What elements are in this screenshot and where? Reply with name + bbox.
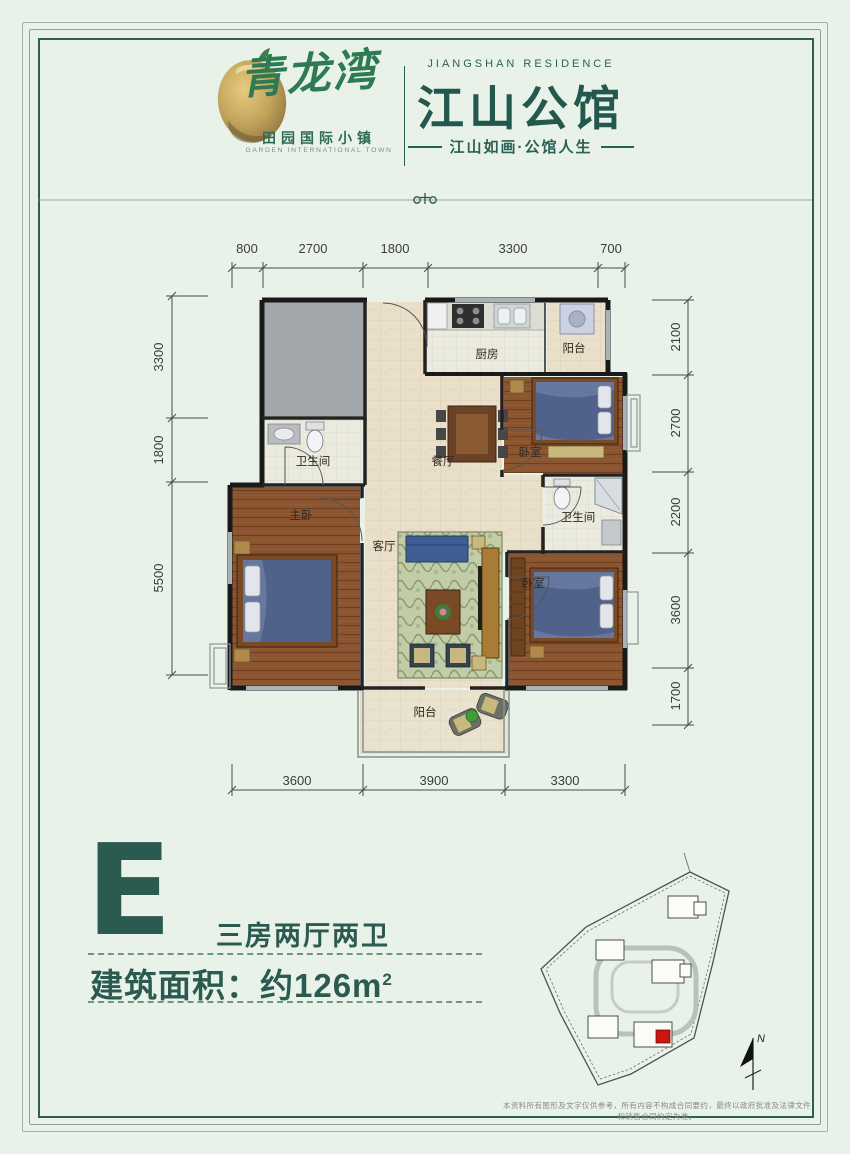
kitchen-counter [425,302,545,330]
dim-right-4: 3600 [668,596,683,625]
room-label-bath-right: 卫生间 [561,510,596,524]
room-label-balcony-top: 阳台 [563,341,586,355]
dim-bottom-2: 3900 [420,773,449,788]
dim-top-4: 3300 [499,241,528,256]
dim-top-1: 800 [236,241,258,256]
dim-top-5: 700 [600,241,622,256]
north-arrow-icon: N [740,1033,765,1090]
room-label-bedroom-bottom: 卧室 [522,576,545,590]
disclaimer-text: 本资料所有图形及文字仅供参考，所有内容不构成合同要约，最终以政府批准及法律文件和… [502,1100,812,1122]
dim-bottom-1: 3600 [283,773,312,788]
dashed-divider-bottom [88,1001,482,1003]
dim-top-2: 2700 [299,241,328,256]
dim-right-3: 2200 [668,498,683,527]
passage-floor [502,475,543,552]
master-bed [234,541,337,662]
dim-bottom-3: 3300 [551,773,580,788]
washing-machine [560,304,594,334]
living-room-set [398,532,502,678]
room-label-bedroom-top: 卧室 [519,445,542,459]
dim-top-3: 1800 [381,241,410,256]
dim-right-1: 2100 [668,323,683,352]
dim-left-3: 5500 [151,564,166,593]
unit-area-label: 建筑面积：约126m [90,967,382,1004]
room-label-kitchen: 厨房 [476,348,499,361]
room-label-dining: 餐厅 [432,454,455,468]
north-label: N [757,1033,765,1045]
room-label-living: 客厅 [373,539,396,553]
stairwell [264,302,365,416]
dim-right-2: 2700 [668,409,683,438]
site-plan [541,853,729,1085]
unit-area-text: 建筑面积：约126m2 [90,959,393,1007]
poster-page: 青龙湾 田园国际小镇 GARDEN INTERNATIONAL TOWN JIA… [0,0,850,1154]
room-label-balcony-bottom: 阳台 [414,705,437,719]
unit-area-sup: 2 [382,970,392,989]
room-label-master: 主卧 [290,509,313,522]
unit-layout-text: 三房两厅两卫 [216,914,390,953]
dim-left-2: 1800 [151,436,166,465]
room-label-bath-left: 卫生间 [296,454,331,468]
highlighted-building [656,1030,670,1043]
entry-floor [365,302,425,374]
dashed-divider-top [88,953,482,955]
unit-letter: E [86,828,172,954]
dim-right-5: 1700 [668,682,683,711]
dim-left-1: 3300 [151,343,166,372]
